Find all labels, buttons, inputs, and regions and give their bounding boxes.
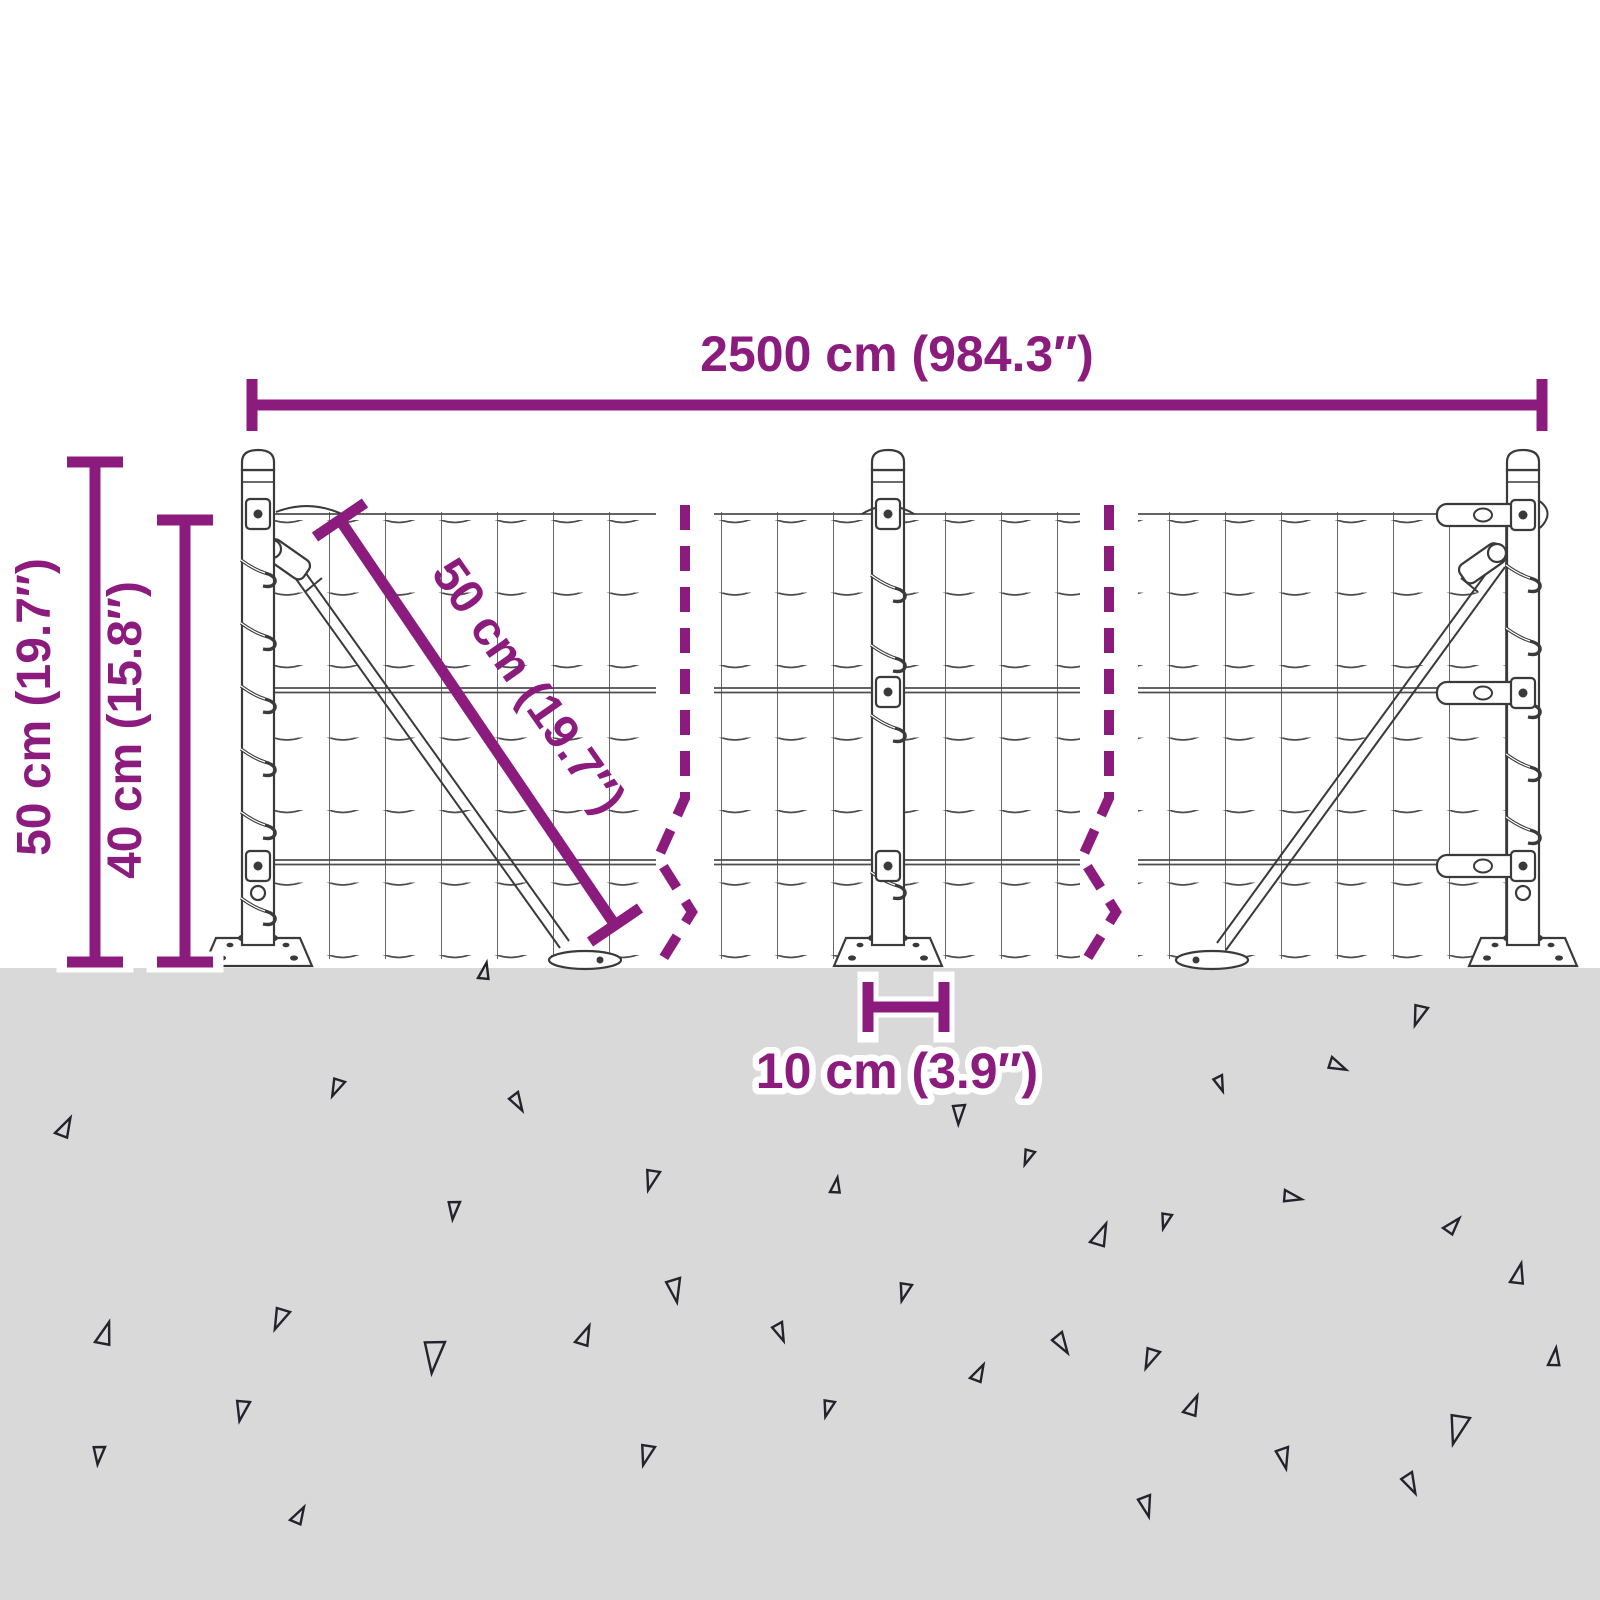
clamp	[1511, 500, 1535, 530]
fence-dimension-diagram: 2500 cm (984.3″) 50 cm (19.7″) 40 cm (15…	[0, 0, 1600, 1600]
clamp	[876, 851, 900, 881]
clamp	[876, 677, 900, 707]
post-height-label: 50 cm (19.7″)	[8, 558, 61, 856]
mesh-height-label: 40 cm (15.8″)	[99, 581, 152, 879]
clamp	[876, 499, 900, 529]
anchor-width-label: 10 cm (3.9″)	[756, 1043, 1038, 1099]
clamp	[1511, 851, 1535, 881]
dimension-total-length: 2500 cm (984.3″)	[252, 326, 1542, 431]
total-length-label: 2500 cm (984.3″)	[700, 326, 1094, 382]
clamp	[246, 499, 270, 529]
dimension-mesh-height: 40 cm (15.8″)	[99, 520, 213, 962]
break-line-left	[656, 505, 692, 970]
diagram-canvas: 2500 cm (984.3″) 50 cm (19.7″) 40 cm (15…	[0, 0, 1600, 1600]
clamp	[1511, 678, 1535, 708]
break-line-right	[1080, 505, 1116, 970]
clamp	[246, 851, 270, 881]
